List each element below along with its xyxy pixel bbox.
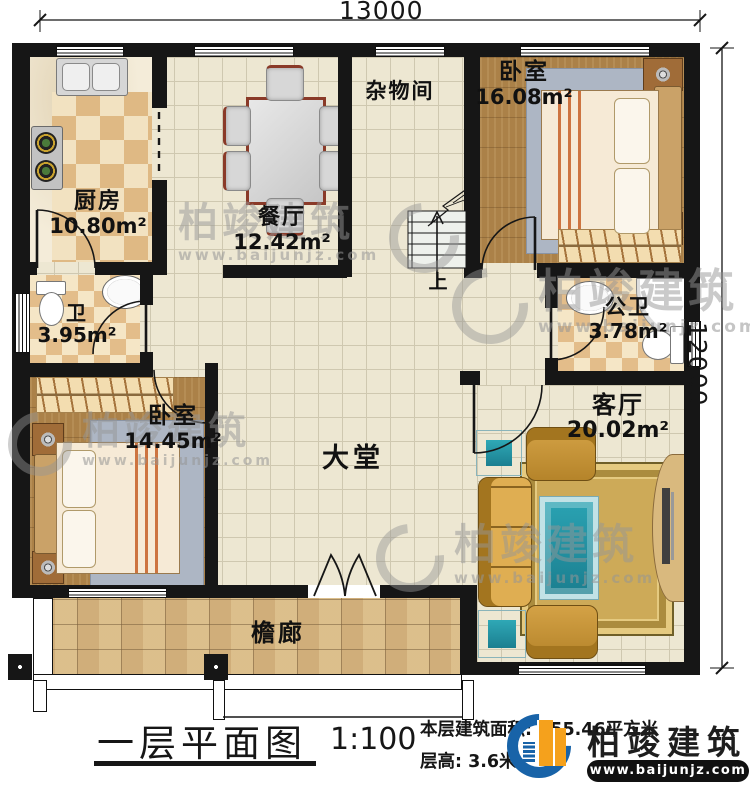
- wall-bedroom-top-bottom: [464, 263, 482, 278]
- bed-blanket-stripes: [558, 91, 588, 239]
- wall-dining-right: [338, 57, 352, 277]
- wall-living-left: [460, 585, 477, 675]
- floor-plan-canvas: 厨房 10.80m² 餐厅 12.42m² 杂物间 卧室 16.08m² 卫 3…: [0, 0, 750, 798]
- dim-right-value: 12000: [683, 322, 712, 407]
- side-table: [478, 610, 526, 658]
- veranda-left-curb: [33, 598, 53, 677]
- veranda-post: [33, 680, 47, 712]
- wall-public-bath-bottom: [545, 371, 684, 385]
- window: [14, 293, 30, 353]
- window: [56, 45, 124, 57]
- dim-slash: [716, 42, 728, 674]
- wall-kitchen-right: [152, 180, 167, 275]
- dining-chair: [266, 65, 304, 101]
- brand-logo: 柏竣建筑 www.baijunjz.com: [505, 710, 745, 794]
- armchair: [526, 427, 596, 481]
- brand-name: 柏竣建筑: [587, 716, 747, 764]
- wall-bedroom-bottom-right: [205, 363, 218, 598]
- title-underline: [94, 761, 316, 766]
- wall-living-top: [460, 371, 480, 385]
- wall-kitchen-bottom: [30, 262, 37, 275]
- floor-height-label: 层高:: [420, 752, 462, 772]
- dining-chair: [223, 151, 251, 191]
- dim-top-value: 13000: [339, 0, 424, 25]
- stove-burner-icon: [35, 132, 57, 154]
- window: [375, 45, 445, 57]
- window: [68, 587, 167, 598]
- wall-kitchen-right: [152, 57, 167, 108]
- dining-chair: [223, 106, 251, 146]
- logo-windows-icon: [523, 742, 535, 762]
- tv-screen: [662, 488, 670, 564]
- kitchen-sink-basin: [92, 63, 120, 91]
- wall-kitchen-bottom: [95, 262, 152, 275]
- pillow: [62, 510, 96, 568]
- wall-bath-bottom: [12, 363, 153, 377]
- veranda-column: [8, 654, 32, 680]
- coffee-table: [540, 497, 598, 599]
- kitchen-sink-basin: [62, 63, 90, 91]
- side-table: [476, 430, 522, 476]
- pillow: [614, 98, 650, 164]
- window: [520, 45, 650, 57]
- toilet-tank: [670, 326, 684, 364]
- dim-tick: [710, 48, 734, 668]
- plan-title: 一层平面图: [97, 713, 307, 767]
- tv-screen-highlight: [671, 492, 674, 560]
- wardrobe: [36, 377, 174, 413]
- window: [194, 45, 294, 57]
- pillow: [614, 168, 650, 234]
- kitchen-checker-floor: [52, 92, 152, 262]
- wall-public-bath-left: [545, 278, 558, 308]
- sofa: [478, 477, 532, 607]
- wall-bath-right: [140, 275, 153, 305]
- dining-table: [246, 97, 326, 205]
- dining-chair: [266, 198, 304, 236]
- floor-height-line: 层高: 3.6米: [420, 748, 517, 773]
- wall-storage-right: [464, 57, 480, 278]
- wash-basin: [566, 281, 614, 315]
- window: [518, 664, 646, 675]
- veranda-front-curb: [33, 674, 462, 690]
- logo-building-icon: [553, 728, 566, 766]
- brand-logo-icon: [507, 714, 571, 778]
- veranda-column: [204, 654, 228, 680]
- toilet-bowl: [39, 292, 64, 326]
- pillow: [62, 450, 96, 508]
- wall-dining-bottom: [223, 265, 347, 278]
- plan-scale: 1:100: [330, 722, 416, 757]
- logo-building-icon: [537, 720, 553, 766]
- wall-bedroom-top-bottom: [537, 263, 684, 278]
- armchair: [526, 605, 598, 659]
- bed-blanket-stripes: [135, 443, 165, 573]
- wardrobe: [558, 229, 682, 263]
- veranda-post: [462, 680, 474, 720]
- veranda-floor: [33, 598, 461, 675]
- brand-website: www.baijunjz.com: [587, 760, 749, 782]
- stove-burner-icon: [35, 160, 57, 182]
